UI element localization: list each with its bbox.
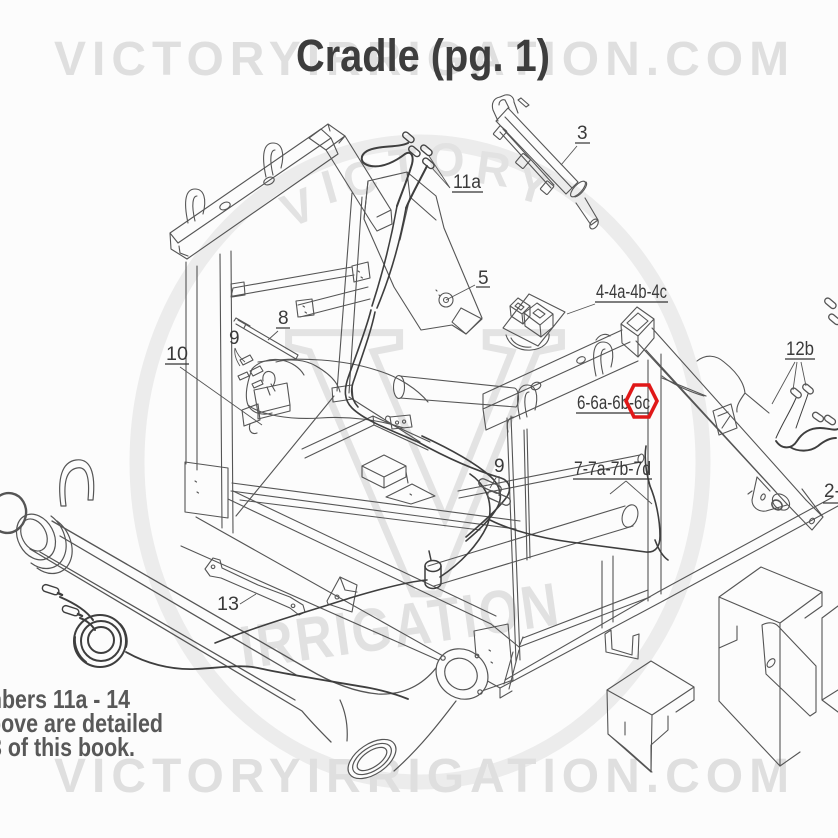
svg-text:8: 8 bbox=[278, 308, 289, 329]
svg-text:12b: 12b bbox=[786, 339, 814, 360]
svg-text:11a: 11a bbox=[453, 172, 481, 193]
svg-text:3: 3 bbox=[577, 123, 588, 144]
svg-text:9: 9 bbox=[494, 456, 505, 477]
svg-text:Cradle (pg. 1): Cradle (pg. 1) bbox=[296, 30, 550, 81]
svg-text:4-4a-4b-4c: 4-4a-4b-4c bbox=[596, 282, 667, 303]
svg-text:7-7a-7b-7d: 7-7a-7b-7d bbox=[574, 459, 651, 480]
svg-text:VICTORYIRRIGATION.COM: VICTORYIRRIGATION.COM bbox=[54, 750, 795, 803]
svg-text:13: 13 bbox=[217, 594, 239, 615]
svg-text:3 of this book.: 3 of this book. bbox=[0, 732, 135, 762]
svg-text:10: 10 bbox=[166, 344, 188, 365]
svg-text:9: 9 bbox=[229, 328, 240, 349]
svg-text:2-: 2- bbox=[824, 481, 838, 502]
svg-text:5: 5 bbox=[478, 268, 489, 289]
svg-text:6-6a-6b-6c: 6-6a-6b-6c bbox=[577, 393, 650, 414]
